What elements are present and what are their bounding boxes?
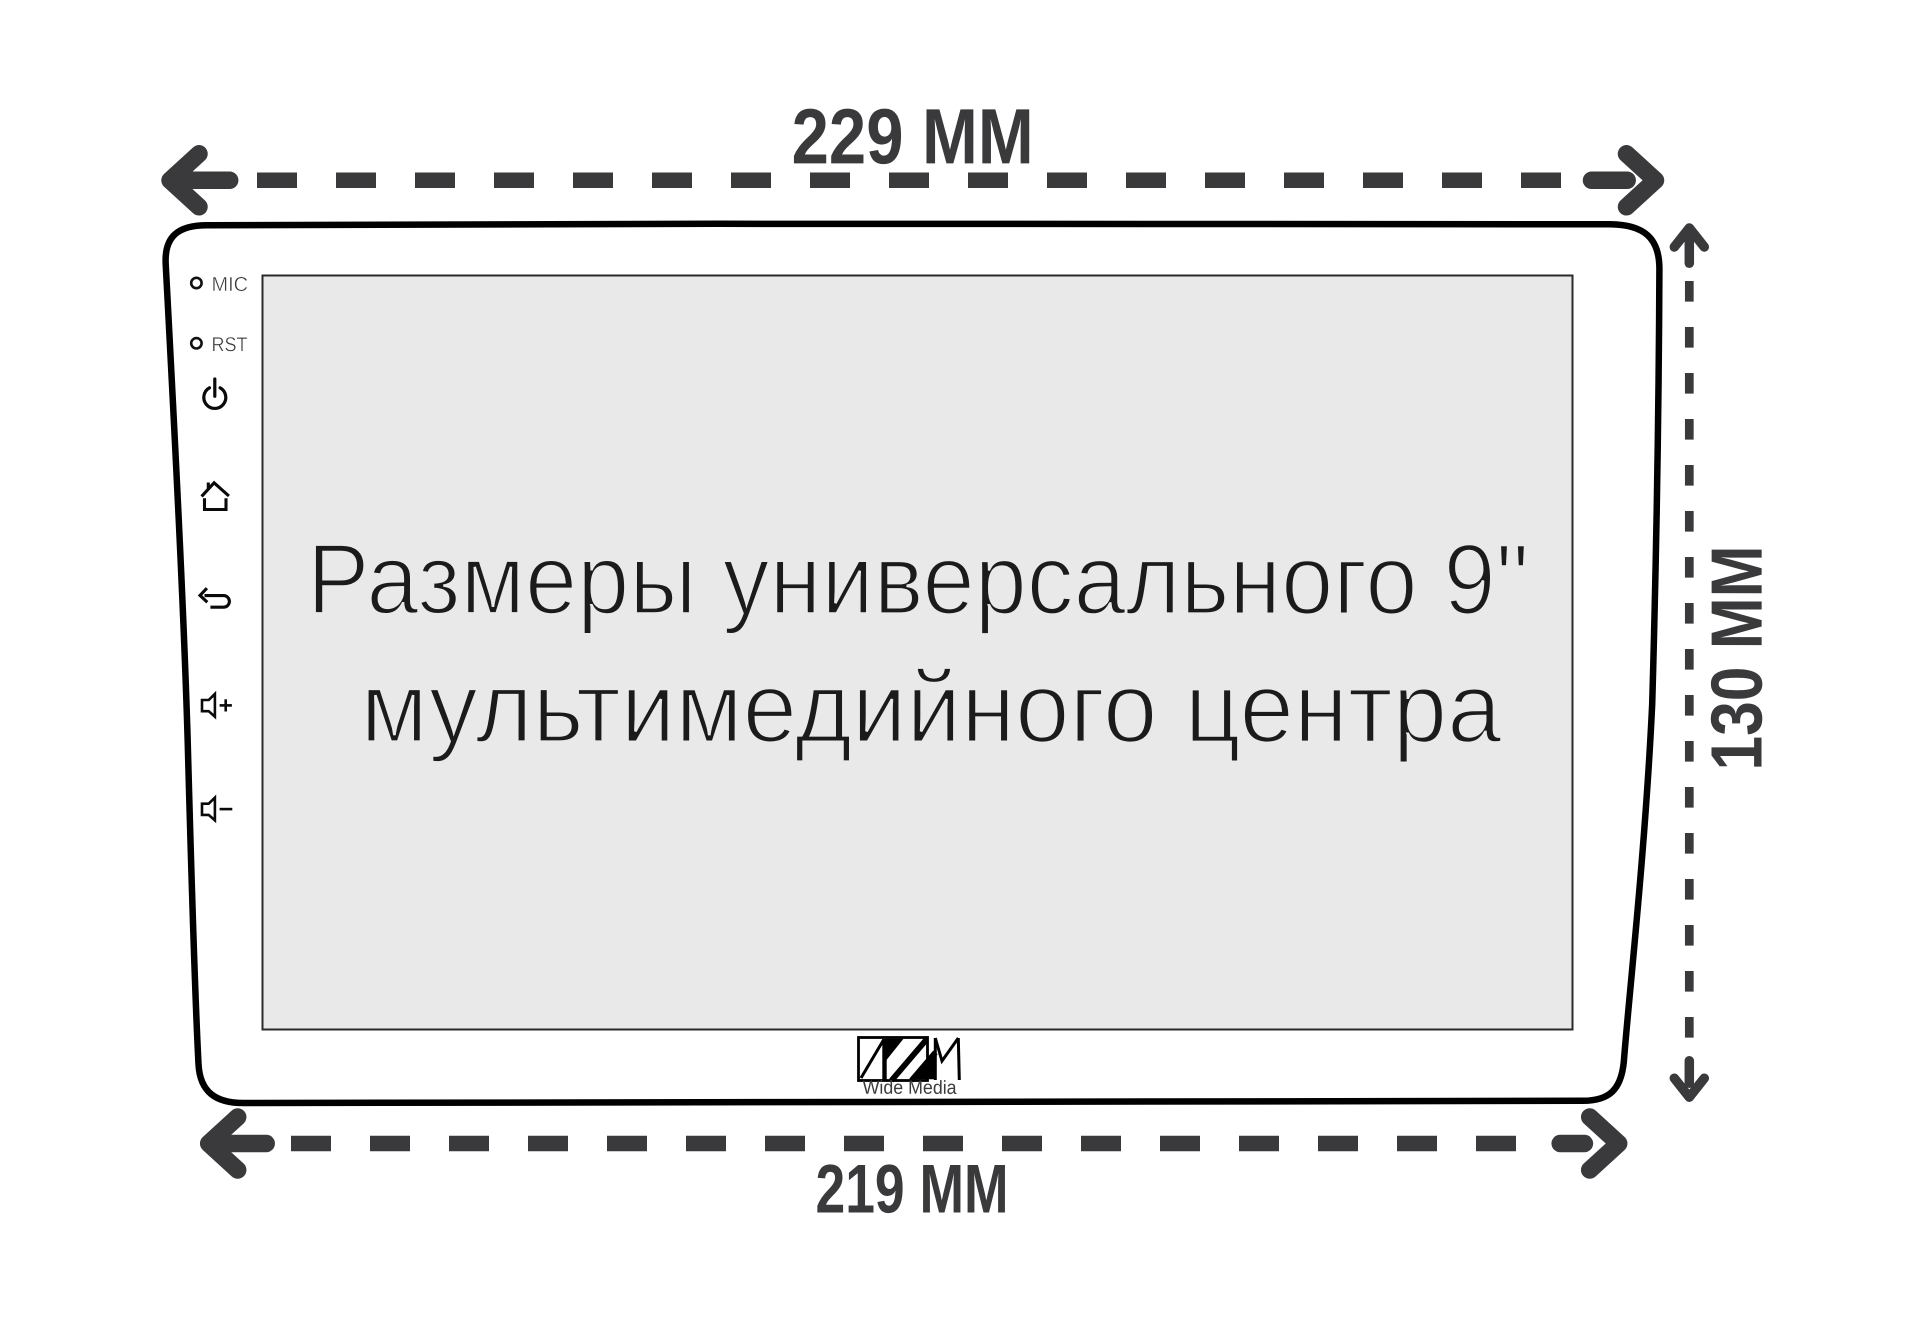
svg-text:229 MM: 229 MM bbox=[792, 92, 1034, 180]
svg-text:RST: RST bbox=[211, 334, 247, 356]
svg-text:219 MM: 219 MM bbox=[815, 1150, 1008, 1227]
svg-text:MIC: MIC bbox=[211, 274, 248, 296]
svg-text:мультимедийного центра: мультимедийного центра bbox=[360, 652, 1501, 764]
svg-text:Wide Media: Wide Media bbox=[863, 1078, 957, 1099]
svg-text:130 MM: 130 MM bbox=[1697, 545, 1778, 770]
svg-text:Размеры универсального 9": Размеры универсального 9" bbox=[307, 523, 1529, 635]
